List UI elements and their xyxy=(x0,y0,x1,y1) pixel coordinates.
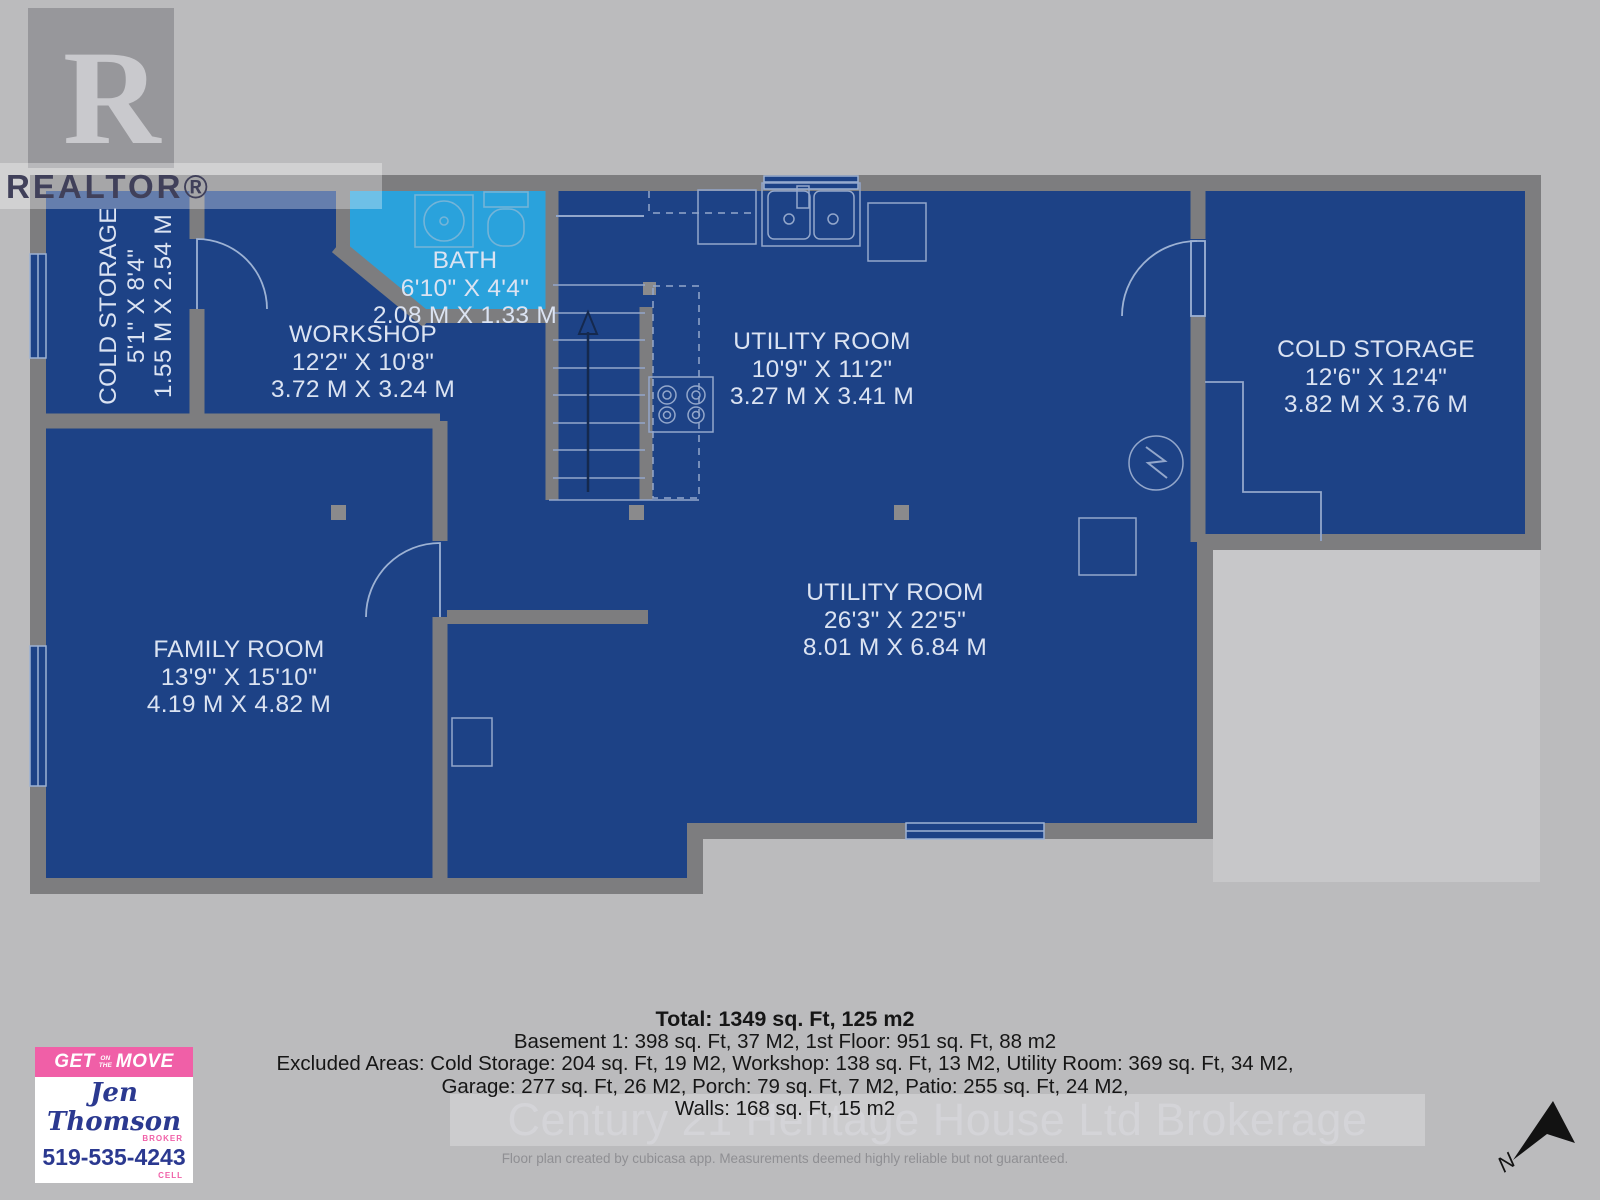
room-name: COLD STORAGE xyxy=(1277,336,1475,364)
room-label-workshop: WORKSHOP 12'2" X 10'8" 3.72 M X 3.24 M xyxy=(271,321,455,404)
room-dims-metric: 4.19 M X 4.82 M xyxy=(147,691,331,719)
realtor-wordmark: REALTOR® xyxy=(6,168,211,206)
room-dims-metric: 3.82 M X 3.76 M xyxy=(1277,391,1475,419)
summary-floors: Basement 1: 398 sq. Ft, 37 M2, 1st Floor… xyxy=(85,1031,1485,1054)
summary-walls: Walls: 168 sq. Ft, 15 m2 xyxy=(85,1098,1485,1121)
room-name: UTILITY ROOM xyxy=(803,579,987,607)
banner-on: ON xyxy=(100,1055,110,1062)
summary-total: Total: 1349 sq. Ft, 125 m2 xyxy=(85,1008,1485,1031)
banner-get: GET xyxy=(54,1051,95,1073)
room-dims-metric: 3.72 M X 3.24 M xyxy=(271,376,455,404)
agent-name: Jen Thomson xyxy=(35,1079,193,1137)
room-label-family-room: FAMILY ROOM 13'9" X 15'10" 4.19 M X 4.82… xyxy=(147,636,331,719)
north-label: N xyxy=(1493,1148,1520,1178)
room-dims-imperial: 26'3" X 22'5" xyxy=(803,606,987,634)
summary-excluded-1: Excluded Areas: Cold Storage: 204 sq. Ft… xyxy=(85,1053,1485,1076)
north-arrow: N xyxy=(1493,1101,1575,1177)
summary-excluded-2: Garage: 277 sq. Ft, 26 M2, Porch: 79 sq.… xyxy=(85,1076,1485,1099)
agent-phone-label: CELL xyxy=(35,1171,193,1180)
room-dims-imperial: 6'10" X 4'4" xyxy=(373,274,557,302)
agent-banner: GET ON THE MOVE xyxy=(35,1047,193,1077)
room-name: FAMILY ROOM xyxy=(147,636,331,664)
banner-move: MOVE xyxy=(116,1051,174,1073)
room-label-cold-storage-left: COLD STORAGE 5'1" X 8'4" 1.55 M X 2.54 M xyxy=(95,207,178,405)
room-label-utility-top: UTILITY ROOM 10'9" X 11'2" 3.27 M X 3.41… xyxy=(730,328,914,411)
realtor-r-glyph: R xyxy=(63,24,162,173)
room-name: COLD STORAGE xyxy=(95,207,123,405)
room-name: BATH xyxy=(373,247,557,275)
disclaimer-text: Floor plan created by cubicasa app. Meas… xyxy=(85,1151,1485,1166)
room-dims-imperial: 12'2" X 10'8" xyxy=(271,348,455,376)
room-dims-imperial: 10'9" X 11'2" xyxy=(730,355,914,383)
area-summary: Total: 1349 sq. Ft, 125 m2 Basement 1: 3… xyxy=(85,1008,1485,1121)
room-dims-imperial: 5'1" X 8'4" xyxy=(122,207,150,405)
room-name: WORKSHOP xyxy=(271,321,455,349)
room-label-bath: BATH 6'10" X 4'4" 2.08 M X 1.33 M xyxy=(373,247,557,330)
room-dims-metric: 1.55 M X 2.54 M xyxy=(150,207,178,405)
room-label-cold-storage-right: COLD STORAGE 12'6" X 12'4" 3.82 M X 3.76… xyxy=(1277,336,1475,419)
room-dims-metric: 8.01 M X 6.84 M xyxy=(803,634,987,662)
room-dims-imperial: 13'9" X 15'10" xyxy=(147,663,331,691)
room-dims-imperial: 12'6" X 12'4" xyxy=(1277,363,1475,391)
room-dims-metric: 3.27 M X 3.41 M xyxy=(730,383,914,411)
realtor-logo: R xyxy=(28,8,174,173)
agent-phone: 519-535-4243 xyxy=(35,1144,193,1171)
patio-area xyxy=(1213,550,1540,882)
room-name: UTILITY ROOM xyxy=(730,328,914,356)
banner-on-the: ON THE xyxy=(99,1055,112,1069)
agent-card: GET ON THE MOVE Jen Thomson BROKER 519-5… xyxy=(35,1047,193,1183)
floor-plan-page: R N REALTOR® COLD STORAGE 5'1" X 8'4" 1.… xyxy=(0,0,1600,1200)
room-label-utility-main: UTILITY ROOM 26'3" X 22'5" 8.01 M X 6.84… xyxy=(803,579,987,662)
banner-the: THE xyxy=(99,1062,112,1069)
